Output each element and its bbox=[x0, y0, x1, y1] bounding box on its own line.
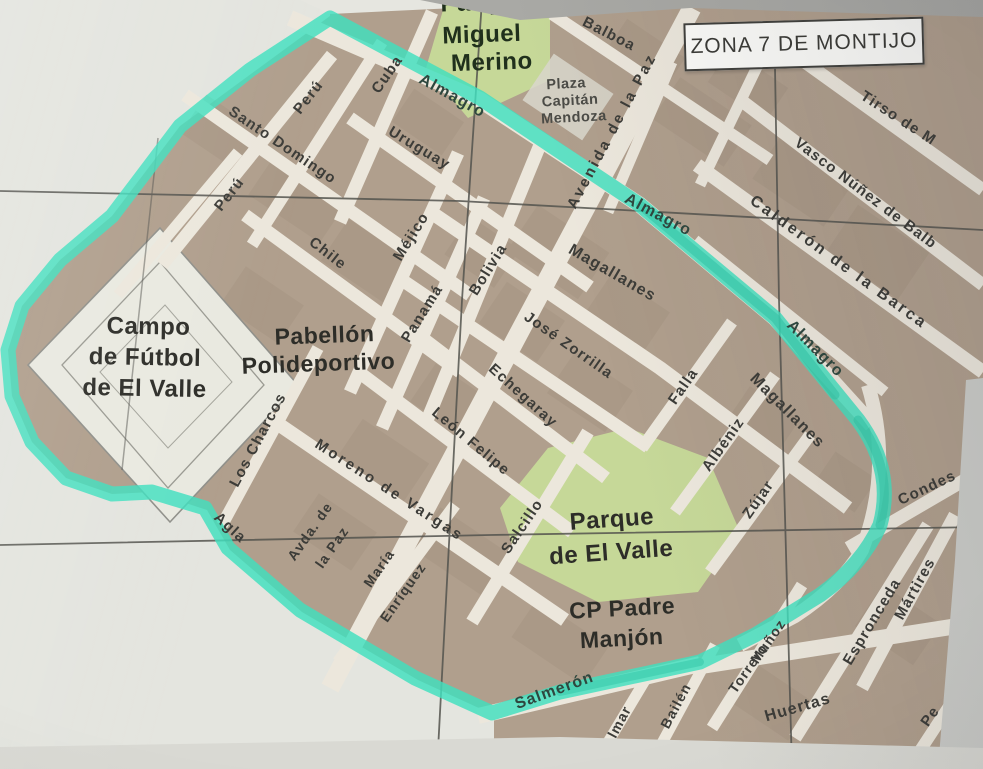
place-label-line: Campo bbox=[106, 312, 190, 340]
place-label-line: de Fútbol bbox=[89, 343, 202, 372]
place-label-line: CP Padre bbox=[569, 592, 676, 624]
place-label-line: Pabellón bbox=[274, 320, 375, 349]
place-label-line: Capitán bbox=[541, 92, 598, 111]
place-label-line: de El Valle bbox=[82, 374, 207, 403]
street-map: Almagro Almagro Almagro Santo Domingo Pe… bbox=[0, 0, 983, 769]
zone-title: ZONA 7 DE MONTIJO bbox=[690, 29, 918, 59]
place-label-line: Plaza bbox=[546, 75, 587, 93]
place-label-line: Merino bbox=[450, 47, 533, 77]
place-label-line: Miguel bbox=[442, 20, 522, 50]
place-label-line: Polideportivo bbox=[241, 347, 395, 378]
place-label-line: Manjón bbox=[579, 623, 664, 653]
map-photo: Almagro Almagro Almagro Santo Domingo Pe… bbox=[0, 0, 983, 769]
zone-title-box: ZONA 7 DE MONTIJO bbox=[683, 17, 924, 72]
